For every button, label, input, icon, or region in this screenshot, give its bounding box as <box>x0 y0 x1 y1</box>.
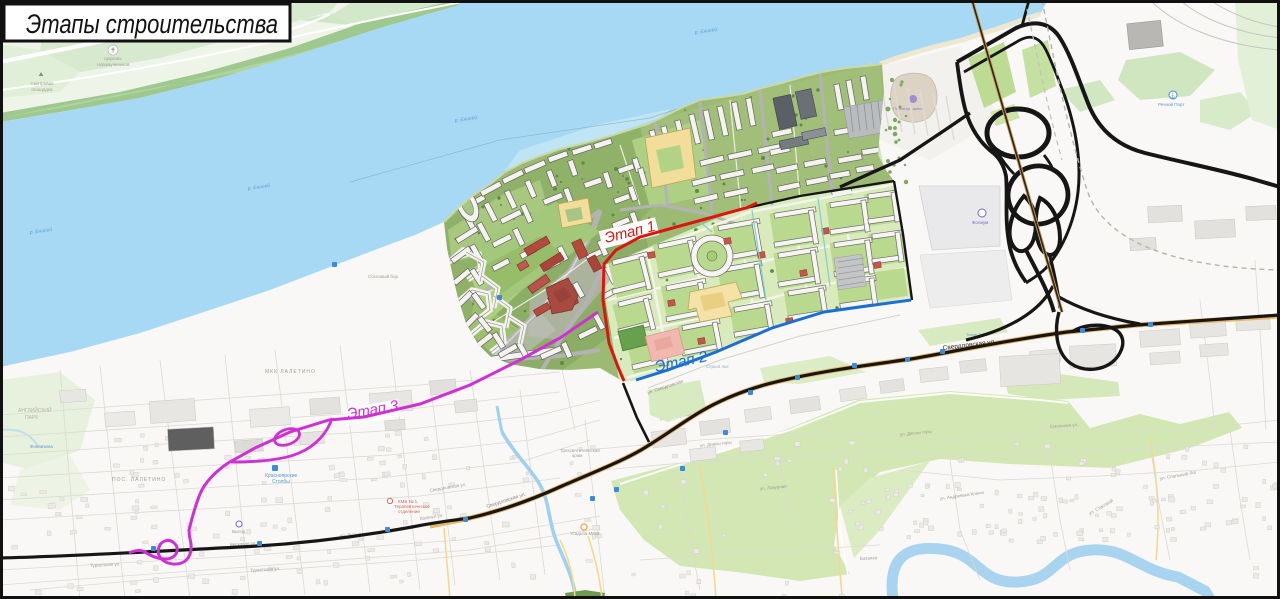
svg-text:Серый лог: Серый лог <box>706 363 729 369</box>
svg-text:Сосновый бор: Сосновый бор <box>368 273 398 279</box>
svg-text:Этапы строительства: Этапы строительства <box>26 9 278 39</box>
svg-text:⚓: ⚓ <box>1170 93 1176 100</box>
svg-text:храм: храм <box>572 453 582 458</box>
svg-text:ПОС. ЛАЛЕТИНО: ПОС. ЛАЛЕТИНО <box>112 477 166 483</box>
svg-text:Выезд: Выезд <box>232 529 246 534</box>
svg-text:Фолиум: Фолиум <box>972 220 988 225</box>
svg-text:площадка: площадка <box>31 87 53 92</box>
svg-text:Смотровая: Смотровая <box>30 81 54 86</box>
svg-text:ПАРК: ПАРК <box>25 415 38 421</box>
svg-text:Речной Порт: Речной Порт <box>1158 101 1184 107</box>
svg-text:Фонвизина: Фонвизина <box>30 444 53 449</box>
svg-text:Столбы: Столбы <box>272 479 290 485</box>
svg-text:МКК ЛАЛЕТИНО: МКК ЛАЛЕТИНО <box>265 369 316 375</box>
svg-text:✝: ✝ <box>110 47 116 55</box>
svg-text:⛰: ⛰ <box>38 71 43 78</box>
svg-text:Базаиха: Базаиха <box>860 555 878 561</box>
svg-text:отделение: отделение <box>398 509 420 514</box>
svg-text:Церковь: Церковь <box>104 56 122 61</box>
svg-text:Новомучеников: Новомучеников <box>97 62 130 67</box>
svg-text:Усадьба Меха: Усадьба Меха <box>570 531 600 536</box>
svg-text:АНГЛИЙСКИЙ: АНГЛИЙСКИЙ <box>18 406 52 414</box>
